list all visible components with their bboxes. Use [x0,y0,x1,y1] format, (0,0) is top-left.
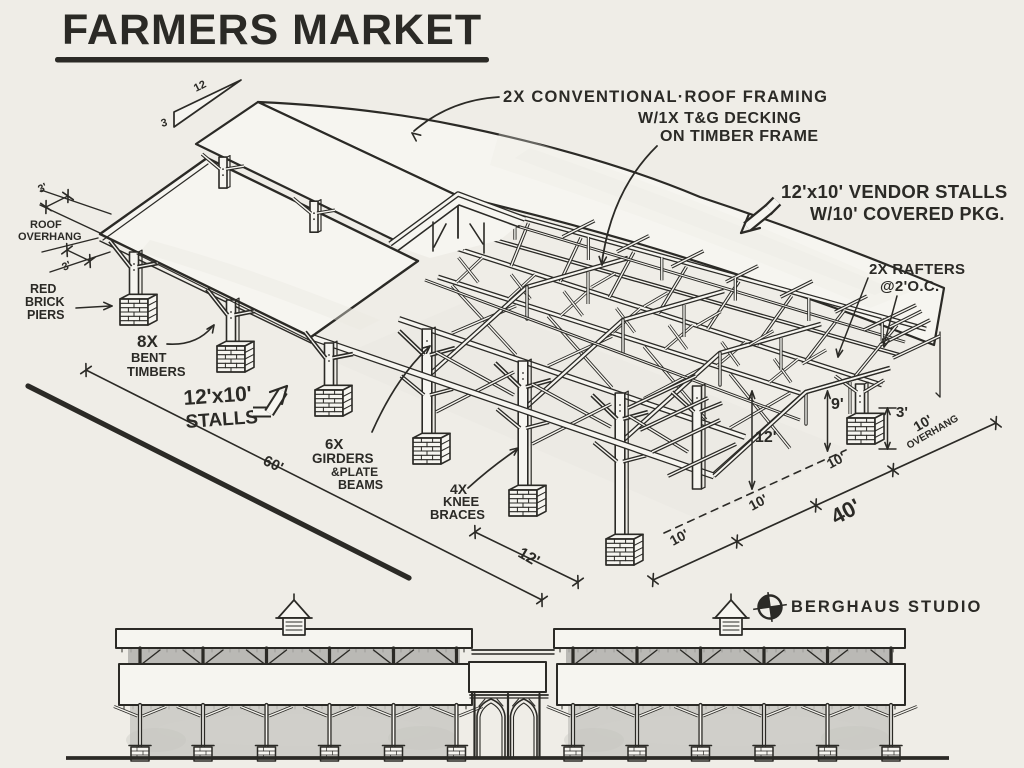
svg-text:W/1X T&G DECKING: W/1X T&G DECKING [638,110,802,127]
svg-text:ON TIMBER FRAME: ON TIMBER FRAME [660,128,819,145]
svg-text:2X RAFTERS: 2X RAFTERS [869,261,965,278]
svg-text:BEAMS: BEAMS [338,478,383,492]
svg-text:OVERHANG: OVERHANG [18,231,82,243]
svg-text:FARMERS MARKET: FARMERS MARKET [62,6,482,54]
svg-text:PIERS: PIERS [27,308,65,322]
svg-text:12'x10': 12'x10' [183,382,253,410]
svg-text:3': 3' [896,404,908,421]
svg-text:GIRDERS: GIRDERS [312,451,374,466]
svg-text:12': 12' [755,429,777,446]
svg-text:8X: 8X [137,332,158,351]
svg-text:@2'O.C.: @2'O.C. [880,278,939,295]
svg-text:TIMBERS: TIMBERS [127,364,186,379]
svg-text:BERGHAUS STUDIO: BERGHAUS STUDIO [791,598,982,616]
svg-text:9': 9' [831,396,844,413]
svg-text:BENT: BENT [131,350,166,365]
svg-text:&PLATE: &PLATE [331,465,378,479]
svg-text:BRACES: BRACES [430,507,485,522]
svg-text:BRICK: BRICK [25,295,65,309]
svg-text:W/10' COVERED PKG.: W/10' COVERED PKG. [810,204,1005,224]
svg-text:12'x10' VENDOR STALLS: 12'x10' VENDOR STALLS [781,181,1008,202]
svg-text:RED: RED [30,282,56,296]
svg-text:2X CONVENTIONAL·ROOF FRAMING: 2X CONVENTIONAL·ROOF FRAMING [503,88,828,106]
svg-text:ROOF: ROOF [30,219,62,231]
